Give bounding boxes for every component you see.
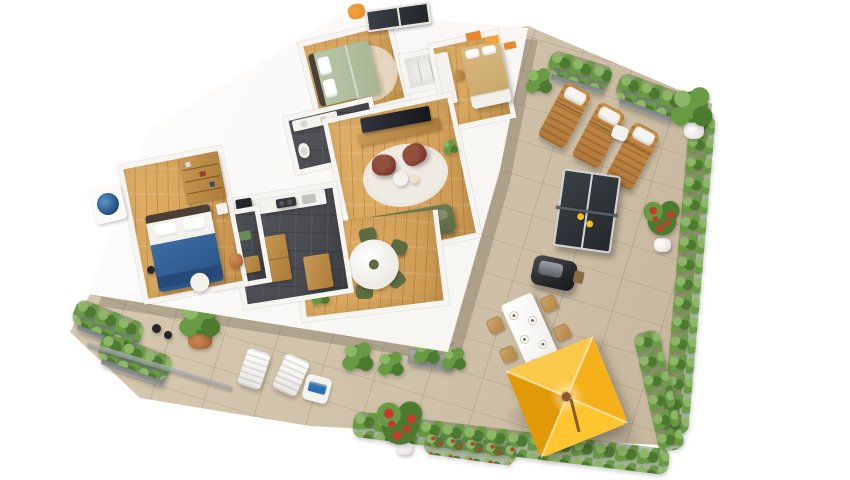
rose-bush-pot-right bbox=[654, 238, 671, 252]
bookshelf-shelf-line-3 bbox=[187, 187, 223, 195]
nightstand bbox=[216, 202, 229, 215]
parasol-pole bbox=[569, 398, 580, 432]
blue-towel bbox=[307, 381, 327, 395]
toilet bbox=[297, 142, 311, 159]
vanity-basin-1 bbox=[300, 120, 308, 128]
tall-cabinet bbox=[303, 253, 334, 291]
place-setting-4 bbox=[527, 315, 539, 327]
ping-pong-paddle-1 bbox=[577, 213, 585, 221]
bed-pillow-2 bbox=[322, 78, 338, 98]
bed-fold bbox=[344, 45, 359, 98]
bookshelf bbox=[178, 151, 226, 204]
wardrobe-door-line-1 bbox=[417, 60, 423, 82]
floor-lamp bbox=[146, 265, 155, 274]
living-plant bbox=[440, 137, 460, 157]
bush-south-wall-2 bbox=[376, 350, 406, 378]
toilet-seat bbox=[300, 146, 309, 155]
bush-top-left-of-terrace bbox=[524, 66, 554, 96]
ping-pong-paddle-2 bbox=[586, 220, 594, 228]
ping-pong-table bbox=[553, 168, 621, 253]
place-setting-1 bbox=[508, 310, 520, 322]
bed-pillow-1 bbox=[317, 56, 333, 76]
table-centerpiece bbox=[368, 259, 379, 270]
outdoor-chair-2 bbox=[498, 344, 518, 364]
small-dark-pot-2 bbox=[164, 331, 172, 339]
outdoor-chair-4 bbox=[539, 293, 559, 313]
kids-bed-pillow-1 bbox=[465, 48, 481, 60]
burner-1 bbox=[279, 200, 285, 206]
bush-south-wall-1 bbox=[340, 340, 376, 374]
wall-art-blue-circle bbox=[95, 191, 121, 217]
outdoor-chair-1 bbox=[485, 315, 505, 335]
bookshelf-item-1 bbox=[185, 161, 191, 167]
terracotta-stool bbox=[228, 252, 244, 268]
double-bed-blue bbox=[145, 204, 225, 293]
bookshelf-item-3 bbox=[209, 181, 215, 187]
kids-bed-drawers bbox=[470, 88, 512, 109]
parasol-hub bbox=[560, 391, 572, 403]
kids-desk-chair bbox=[452, 69, 465, 82]
rose-bush-bottom bbox=[372, 398, 428, 450]
floorplan-render bbox=[0, 0, 850, 480]
small-dark-pot-1 bbox=[152, 324, 161, 333]
window-mullion bbox=[397, 8, 401, 26]
bookshelf-item-2 bbox=[199, 171, 206, 177]
place-setting-2 bbox=[519, 333, 531, 345]
kids-bed-pillow-2 bbox=[481, 44, 497, 56]
burner-2 bbox=[287, 199, 293, 205]
place-setting-5 bbox=[537, 338, 549, 350]
corner-plant-bush bbox=[668, 84, 716, 130]
outdoor-chair-5 bbox=[552, 323, 572, 343]
rose-bush-right bbox=[640, 198, 684, 240]
armchair-1 bbox=[372, 154, 396, 175]
